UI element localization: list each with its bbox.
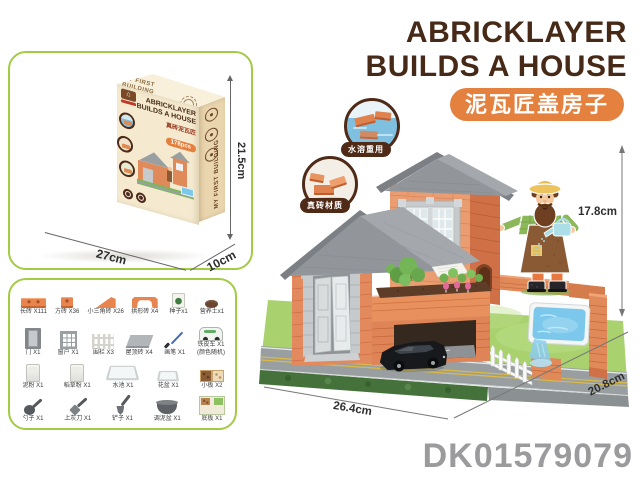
paint-brush-icon (164, 328, 186, 349)
box-height-dim-line (230, 80, 231, 234)
part-label: 画笔 X1 (164, 350, 185, 357)
part-label: 稻草粉 X1 (64, 383, 91, 390)
part-sublabel: (颜色随机) (197, 350, 225, 357)
water-ripple-icon (377, 134, 393, 136)
part-label: 小板 X2 (201, 383, 222, 390)
page-title: ABRICKLAYER BUILDS A HOUSE (366, 16, 627, 84)
part-item: 上灰刀 X1 (64, 394, 91, 423)
box-art-tower (173, 158, 187, 188)
brick-icon (329, 176, 347, 190)
parts-row-3: 泥粉 X1 稻草粉 X1 水池 X1 花盆 X1 小板 X2 (20, 361, 225, 390)
straw-powder-bag-icon (70, 361, 84, 382)
product-code: DK01579079 (423, 437, 633, 476)
part-label: 方砖 X36 (55, 309, 79, 316)
shovel-icon (112, 394, 132, 415)
part-label: 门 X1 (25, 350, 40, 357)
parts-row-1: 长砖 X111 方砖 X36 小三角砖 X26 拱形砖 X4 种子x1 (20, 287, 225, 316)
part-label: 调泥盆 X1 (154, 416, 181, 423)
part-item: 底板 X1 (199, 394, 225, 423)
part-item: 屋顶砖 X4 (126, 328, 153, 357)
part-label: 底板 X1 (201, 416, 222, 423)
scene-width-label: 26.4cm (332, 400, 372, 418)
toy-car-icon (199, 320, 223, 341)
part-item: 门 X1 (20, 328, 46, 357)
callout-water-label: 水溶重用 (341, 142, 391, 157)
part-label: 小三角砖 X26 (88, 309, 124, 316)
door-icon (25, 328, 41, 349)
part-label: 拱形砖 X4 (131, 309, 158, 316)
part-item: 铁皮车 X1 (颜色随机) (197, 320, 225, 357)
square-brick-icon (61, 287, 73, 308)
part-item: 泥粉 X1 (20, 361, 46, 390)
window-icon (60, 328, 77, 349)
trowel-icon (68, 394, 88, 415)
box-mini-callout-water-icon (119, 111, 135, 131)
brick-icon (309, 173, 324, 183)
part-item: 画笔 X1 (162, 328, 188, 357)
parts-row-4: 勺子 X1 上灰刀 X1 铲子 X1 调泥盆 X1 底板 X1 (20, 394, 225, 423)
part-item: 窗户 X1 (55, 328, 81, 357)
scene-height-label: 17.8cm (578, 206, 617, 218)
soil-icon (205, 287, 218, 308)
part-label: 长砖 X111 (20, 309, 47, 316)
part-item: 小三角砖 X26 (88, 287, 124, 316)
part-item: 铲子 X1 (109, 394, 135, 423)
part-label: 上灰刀 X1 (64, 416, 91, 423)
part-item: 围栏 X3 (90, 328, 116, 357)
brick-icon (375, 111, 392, 121)
part-label: 花盆 X1 (158, 383, 179, 390)
parts-row-2: 门 X1 窗户 X1 围栏 X3 屋顶砖 X4 画笔 X1 (20, 320, 225, 357)
pool-tub-icon (108, 361, 137, 382)
part-label: 铲子 X1 (112, 416, 133, 423)
part-item: 小板 X2 (199, 361, 225, 390)
box-logo-icon: ⌂ (121, 88, 136, 102)
planter-tray-icon (158, 361, 178, 382)
box-mini-callout-brick-icon (117, 134, 133, 154)
box-depth-label: 10cm (205, 248, 239, 275)
box-art-figure (167, 170, 172, 182)
warning-badge-icon (136, 191, 146, 204)
parts-panel: 长砖 X111 方砖 X36 小三角砖 X26 拱形砖 X4 种子x1 (8, 278, 237, 430)
mortar-bag-icon (26, 361, 40, 382)
parts-grid: 长砖 X111 方砖 X36 小三角砖 X26 拱形砖 X4 种子x1 (20, 287, 225, 423)
part-item: 调泥盆 X1 (154, 394, 181, 423)
arrow-down-icon (227, 234, 233, 240)
age-badge-icon (123, 188, 133, 201)
base-board-icon (199, 394, 225, 415)
part-item: 方砖 X36 (54, 287, 80, 316)
part-item: 营养土x1 (199, 287, 225, 316)
fence-icon (92, 328, 114, 349)
product-sheet: ABRICKLAYER BUILDS A HOUSE 泥瓦匠盖房子 MY FIR… (0, 0, 640, 480)
part-item: 花盆 X1 (155, 361, 181, 390)
ladle-icon (23, 394, 43, 415)
part-label: 铁皮车 X1 (197, 342, 224, 349)
side-badge-icon (205, 106, 218, 124)
part-item: 稻草粉 X1 (64, 361, 91, 390)
part-item: 勺子 X1 (20, 394, 46, 423)
box-side-face: MY FIRST BUILDING (199, 97, 225, 222)
brick-icon (354, 114, 376, 128)
water-ripple-icon (353, 127, 367, 129)
part-label: 屋顶砖 X4 (126, 350, 153, 357)
part-item: 拱形砖 X4 (131, 287, 158, 316)
small-boards-icon (200, 361, 224, 382)
pool (528, 303, 590, 346)
arch-brick-icon (132, 287, 158, 308)
product-scene: 17.8cm 26.4cm 20.8cm (248, 115, 640, 425)
box-front-face: ⌂ ABRICKLAYER BUILDS A HOUSE 真砖泥瓦匠 178pc… (117, 84, 199, 225)
roof-tile-icon (128, 328, 151, 349)
part-label: 窗户 X1 (58, 350, 79, 357)
part-item: 长砖 X111 (20, 287, 47, 316)
callout-brick-label: 真砖材质 (300, 198, 350, 213)
part-item: 种子x1 (166, 287, 192, 316)
part-label: 种子x1 (169, 309, 187, 316)
part-item: 水池 X1 (108, 361, 137, 390)
triangle-brick-icon (96, 287, 116, 308)
long-brick-icon (21, 287, 46, 308)
part-label: 营养土x1 (200, 309, 224, 316)
box-panel: MY FIRST BUILDING ⌂ ABRICKLAYER BUILDS A… (8, 51, 253, 270)
arrow-up-icon (227, 75, 233, 81)
box-side-text: MY FIRST BUILDING (214, 138, 220, 209)
part-label: 围栏 X3 (93, 350, 114, 357)
seeds-icon (172, 287, 185, 308)
box-mini-callout-build-icon (119, 159, 135, 179)
title-line2: BUILDS A HOUSE (366, 50, 627, 84)
part-label: 勺子 X1 (22, 416, 43, 423)
box-height-label: 21.5cm (235, 142, 247, 179)
brick-icon (360, 131, 378, 140)
mixing-bowl-icon (157, 394, 177, 415)
part-label: 水池 X1 (112, 383, 133, 390)
part-label: 泥粉 X1 (22, 383, 43, 390)
title-line1: ABRICKLAYER (366, 16, 627, 50)
